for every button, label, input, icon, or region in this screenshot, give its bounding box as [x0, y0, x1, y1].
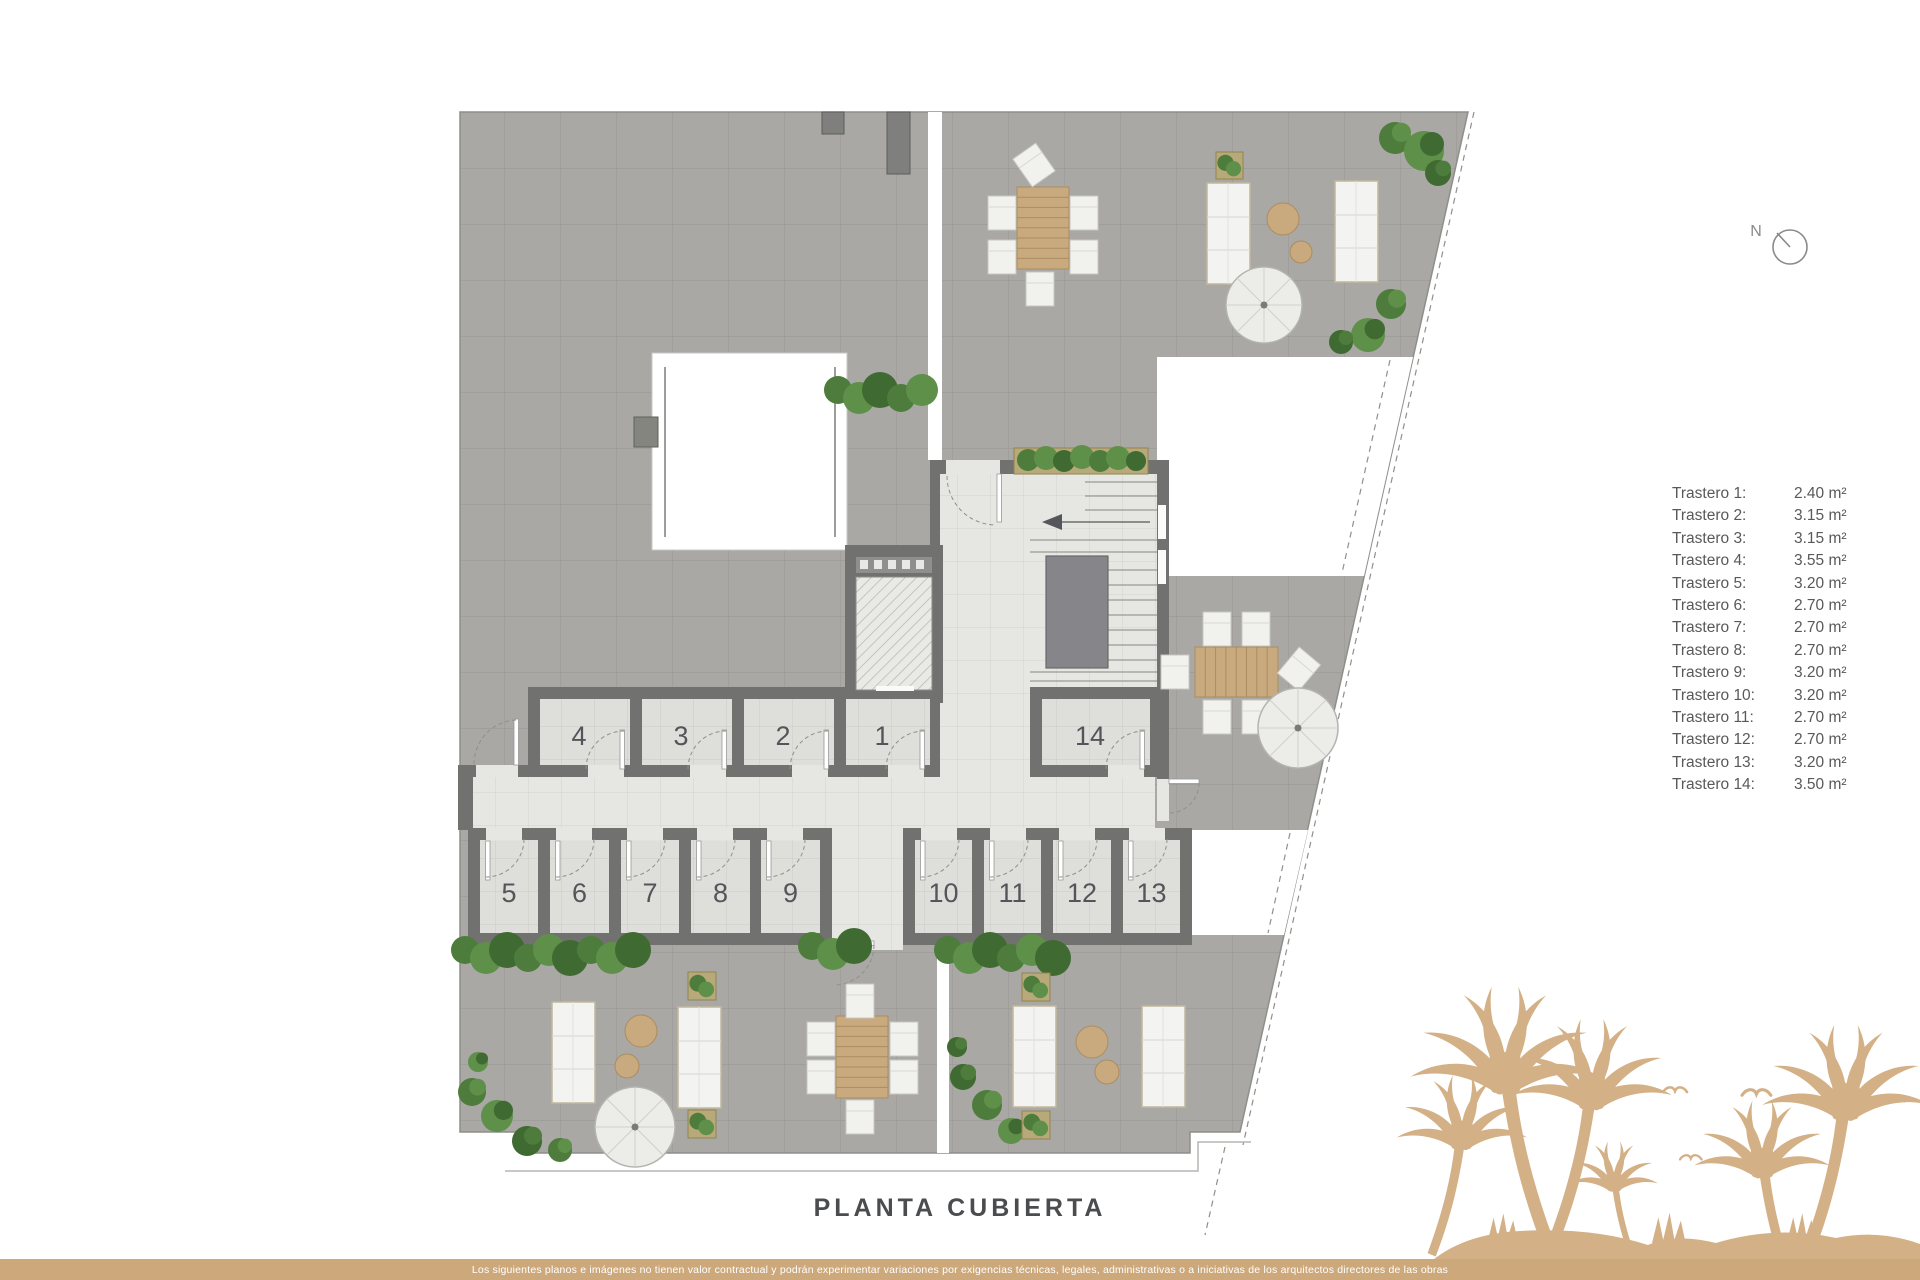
- chair: [807, 1060, 835, 1094]
- side-table: [1267, 203, 1299, 235]
- room-areas-legend: Trastero 1:2.40 m² Trastero 2:3.15 m² Tr…: [1672, 483, 1847, 797]
- legend-label: Trastero 13:: [1672, 752, 1794, 774]
- bird-icon: [1742, 1090, 1771, 1096]
- legend-label: Trastero 1:: [1672, 483, 1794, 505]
- stair-window: [1158, 505, 1166, 539]
- parasol: [595, 1087, 675, 1167]
- chimney: [887, 112, 910, 174]
- floor-plan-page: 4321145678910111213 N Trastero 1:2.40 m²…: [0, 0, 1920, 1280]
- room-number: 2: [775, 721, 790, 751]
- door-leaf: [1140, 730, 1145, 769]
- chair: [988, 240, 1016, 274]
- parasol: [1226, 267, 1302, 343]
- legend-value: 3.20 m²: [1794, 573, 1847, 595]
- chair: [1242, 612, 1270, 646]
- room-number: 1: [874, 721, 889, 751]
- chair: [1161, 655, 1189, 689]
- door-leaf: [920, 730, 925, 769]
- legend-value: 3.55 m²: [1794, 550, 1847, 572]
- elevator: [845, 545, 943, 703]
- planter: [1022, 1111, 1050, 1139]
- palm-decoration: [1396, 986, 1920, 1280]
- bush: [998, 1118, 1024, 1144]
- legend-row: Trastero 1:2.40 m²: [1672, 483, 1847, 505]
- bush: [458, 1078, 486, 1106]
- legend-row: Trastero 14:3.50 m²: [1672, 774, 1847, 796]
- legend-value: 2.40 m²: [1794, 483, 1847, 505]
- legend-row: Trastero 11:2.70 m²: [1672, 707, 1847, 729]
- legend-row: Trastero 13:3.20 m²: [1672, 752, 1847, 774]
- legend-value: 3.50 m²: [1794, 774, 1847, 796]
- door-leaf: [921, 841, 926, 880]
- bird-icon: [1663, 1087, 1687, 1092]
- door-leaf: [556, 841, 561, 880]
- side-table: [1095, 1060, 1119, 1084]
- legend-row: Trastero 7:2.70 m²: [1672, 617, 1847, 639]
- bush: [512, 1126, 542, 1156]
- sofa: [1013, 1006, 1056, 1107]
- legend-value: 2.70 m²: [1794, 640, 1847, 662]
- legend-label: Trastero 14:: [1672, 774, 1794, 796]
- footer-disclaimer: Los siguientes planos e imágenes no tien…: [0, 1264, 1920, 1276]
- legend-value: 2.70 m²: [1794, 707, 1847, 729]
- planter: [688, 972, 716, 1000]
- bush: [1425, 160, 1451, 186]
- chair: [1203, 700, 1231, 734]
- legend-row: Trastero 3:3.15 m²: [1672, 528, 1847, 550]
- door-leaf: [697, 841, 702, 880]
- room-number: 6: [572, 878, 587, 908]
- door-leaf: [620, 730, 625, 769]
- dining-table: [836, 1016, 888, 1098]
- legend-row: Trastero 2:3.15 m²: [1672, 505, 1847, 527]
- bush: [972, 1090, 1002, 1120]
- parasol: [1258, 688, 1338, 768]
- chair: [1070, 196, 1098, 230]
- chair: [846, 1100, 874, 1134]
- chair: [1026, 272, 1054, 306]
- void-right-lower: [1181, 830, 1308, 935]
- legend-row: Trastero 8:2.70 m²: [1672, 640, 1847, 662]
- bush: [468, 1052, 488, 1072]
- skylight-void: [652, 353, 847, 550]
- stair-window: [1158, 550, 1166, 584]
- chair: [846, 984, 874, 1018]
- legend-value: 3.20 m²: [1794, 752, 1847, 774]
- bush: [548, 1138, 572, 1162]
- side-table: [625, 1015, 657, 1047]
- legend-label: Trastero 3:: [1672, 528, 1794, 550]
- room-number: 11: [998, 878, 1026, 908]
- bush: [947, 1037, 967, 1057]
- chair: [988, 196, 1016, 230]
- legend-value: 2.70 m²: [1794, 617, 1847, 639]
- north-compass: N: [1750, 223, 1807, 264]
- floor-plan-drawing: 4321145678910111213 N: [0, 0, 1920, 1280]
- planter: [1216, 152, 1243, 179]
- legend-label: Trastero 7:: [1672, 617, 1794, 639]
- chair: [807, 1022, 835, 1056]
- room-number: 3: [673, 721, 688, 751]
- legend-label: Trastero 2:: [1672, 505, 1794, 527]
- room-number: 4: [571, 721, 586, 751]
- door-leaf: [722, 730, 727, 769]
- legend-value: 2.70 m²: [1794, 729, 1847, 751]
- sofa: [1335, 181, 1378, 282]
- door-leaf: [767, 841, 772, 880]
- legend-label: Trastero 4:: [1672, 550, 1794, 572]
- chair: [1070, 240, 1098, 274]
- room-number: 14: [1075, 721, 1105, 751]
- legend-label: Trastero 6:: [1672, 595, 1794, 617]
- sofa: [1142, 1006, 1185, 1107]
- door-leaf: [1129, 841, 1134, 880]
- door-leaf: [627, 841, 632, 880]
- stair-planter: [1014, 445, 1148, 474]
- side-table: [1076, 1026, 1108, 1058]
- door-leaf: [486, 841, 491, 880]
- chair: [890, 1022, 918, 1056]
- planter: [1022, 973, 1050, 1001]
- void-right: [1157, 357, 1413, 576]
- legend-value: 2.70 m²: [1794, 595, 1847, 617]
- legend-label: Trastero 10:: [1672, 685, 1794, 707]
- bird-icon: [1680, 1155, 1702, 1159]
- legend-row: Trastero 9:3.20 m²: [1672, 662, 1847, 684]
- roof-vent: [634, 417, 658, 447]
- sofa: [552, 1002, 595, 1103]
- room-number: 13: [1136, 878, 1166, 908]
- bush: [1329, 330, 1353, 354]
- sofa: [1207, 183, 1250, 284]
- room-number: 12: [1067, 878, 1097, 908]
- legend-label: Trastero 8:: [1672, 640, 1794, 662]
- room-number: 8: [713, 878, 728, 908]
- door-leaf: [824, 730, 829, 769]
- chair: [1203, 612, 1231, 646]
- room-number: 7: [642, 878, 657, 908]
- room-number: 10: [928, 878, 958, 908]
- dining-table: [1017, 187, 1069, 269]
- legend-label: Trastero 9:: [1672, 662, 1794, 684]
- legend-value: 3.15 m²: [1794, 505, 1847, 527]
- legend-value: 3.20 m²: [1794, 685, 1847, 707]
- bush: [950, 1064, 976, 1090]
- legend-label: Trastero 12:: [1672, 729, 1794, 751]
- legend-label: Trastero 11:: [1672, 707, 1794, 729]
- legend-value: 3.15 m²: [1794, 528, 1847, 550]
- legend-value: 3.20 m²: [1794, 662, 1847, 684]
- terrace-divider-bottom: [937, 955, 949, 1153]
- door-leaf: [1059, 841, 1064, 880]
- room-number: 9: [783, 878, 798, 908]
- legend-row: Trastero 6:2.70 m²: [1672, 595, 1847, 617]
- chair: [890, 1060, 918, 1094]
- legend-label: Trastero 5:: [1672, 573, 1794, 595]
- room-number: 5: [501, 878, 516, 908]
- terrace-divider-top: [928, 112, 942, 460]
- planter: [688, 1110, 716, 1138]
- stair-landing: [1046, 556, 1108, 668]
- dining-table: [1195, 647, 1278, 697]
- side-table: [1290, 241, 1312, 263]
- page-title: PLANTA CUBIERTA: [814, 1194, 1107, 1223]
- legend-row: Trastero 10:3.20 m²: [1672, 685, 1847, 707]
- chimney: [822, 112, 844, 134]
- north-label: N: [1750, 223, 1762, 240]
- side-table: [615, 1054, 639, 1078]
- bush: [481, 1100, 513, 1132]
- legend-row: Trastero 12:2.70 m²: [1672, 729, 1847, 751]
- sofa: [678, 1007, 721, 1108]
- legend-row: Trastero 4:3.55 m²: [1672, 550, 1847, 572]
- bush: [1376, 289, 1406, 319]
- door-leaf: [990, 841, 995, 880]
- bush: [1351, 318, 1385, 352]
- legend-row: Trastero 5:3.20 m²: [1672, 573, 1847, 595]
